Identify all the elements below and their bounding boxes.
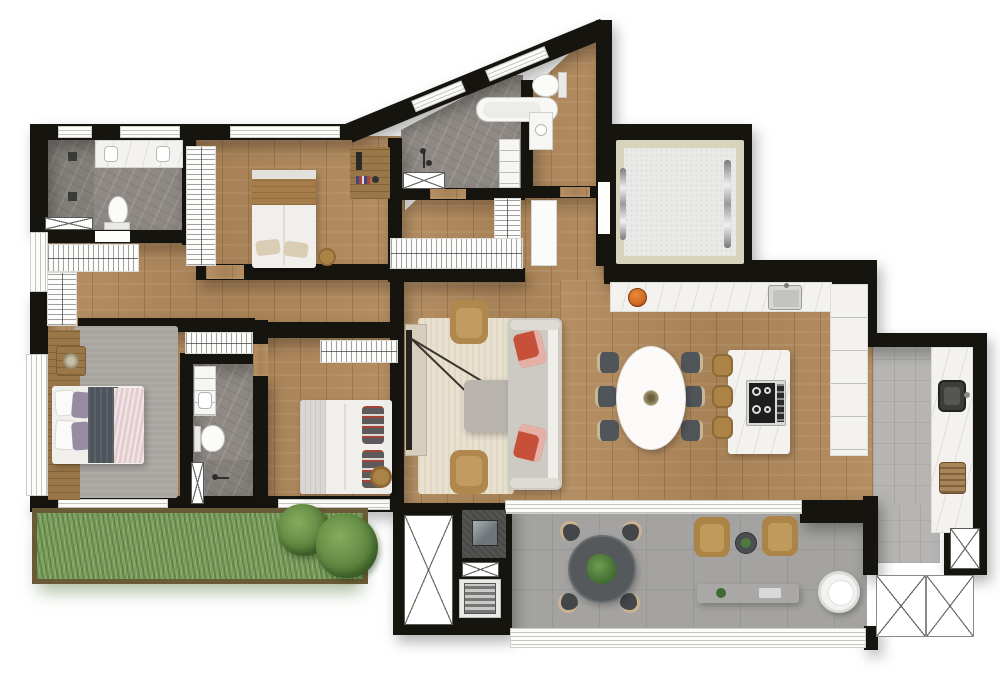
- desk-books: [356, 176, 370, 184]
- door-gap-bedroom1: [206, 265, 244, 279]
- bar-stool-3: [712, 416, 733, 439]
- kitchen-tall-cabinets: [830, 284, 868, 456]
- lounge-chair-1-cushion: [700, 524, 724, 552]
- burner-1: [752, 387, 761, 396]
- elevator-rail-right: [724, 160, 731, 248]
- closet-rack-horizontal: [47, 244, 139, 272]
- wall-bedroom2-top: [253, 322, 402, 338]
- wall-living-left: [390, 268, 404, 512]
- wall-left-upper: [30, 124, 48, 232]
- desk-tv: [356, 152, 362, 170]
- grill-counter-hatch: [462, 562, 499, 577]
- technical-area-cell-1: [876, 575, 926, 637]
- door-gap-bath2: [430, 189, 466, 199]
- balcony-chair-nw: [560, 521, 580, 541]
- balcony-chair-ne: [622, 521, 642, 541]
- door-gap-entry: [598, 182, 610, 234]
- balcony-chair-se: [620, 593, 640, 613]
- door-gap-bath1: [95, 231, 130, 242]
- balcony-table-plant: [587, 554, 617, 584]
- master-shower-door: [191, 462, 204, 504]
- master-shower-arm: [215, 477, 229, 479]
- window-diagonal-1: [411, 80, 465, 112]
- technical-area-cell-2: [926, 575, 974, 637]
- hall-rack-vertical: [494, 198, 521, 242]
- armchair-top: [450, 300, 488, 344]
- egg-chair: [818, 571, 860, 613]
- planter-bench: [697, 584, 799, 603]
- garden-bush-large: [316, 514, 378, 578]
- armchair-bottom-seat: [456, 456, 482, 486]
- desk-bowl: [372, 176, 379, 183]
- window-master-left: [26, 354, 48, 496]
- bedroom1-pouf: [318, 248, 336, 266]
- bedroom2-duvet-seam: [344, 404, 346, 490]
- balcony-side-table: [735, 532, 757, 554]
- master-side-table-vase: [63, 353, 79, 369]
- service-counter: [931, 347, 973, 533]
- master-bath-toilet-tank: [194, 426, 201, 452]
- wall-diagonal: [345, 19, 608, 143]
- grill-grate: [464, 583, 496, 614]
- sofa: [508, 318, 562, 490]
- sofa-pillow-red-1: [512, 329, 547, 369]
- basin-bath1-b: [156, 146, 170, 162]
- bar-stool-1: [712, 354, 733, 377]
- sliding-door-sill-balcony: [505, 500, 802, 514]
- wall-balcony-right: [863, 496, 878, 575]
- closet-rack-vertical: [47, 272, 77, 326]
- dining-chair-l3: [597, 420, 619, 441]
- door-gap-lavabo: [560, 187, 590, 197]
- elevator-rail-left: [620, 168, 626, 240]
- master-bed: [52, 386, 144, 464]
- cabinet-bath2: [499, 139, 520, 188]
- bedroom2-closet-rack: [320, 340, 398, 363]
- door-gap-bedroom2: [253, 344, 268, 376]
- dining-chair-r2: [683, 386, 705, 407]
- service-shaft-small: [950, 528, 980, 569]
- laundry-basket: [939, 462, 966, 494]
- dining-chair-r3: [681, 420, 703, 441]
- fruit-bowl: [628, 288, 647, 307]
- bedroom1-duvet-seam: [283, 205, 285, 265]
- bar-stool-2: [712, 385, 733, 408]
- balcony-chair-sw: [558, 593, 578, 613]
- bedroom1-pillow-a: [255, 239, 281, 257]
- basin-bath1-a: [104, 146, 118, 162]
- cooktop-panel: [749, 383, 775, 423]
- master-bath-basin: [198, 392, 212, 409]
- bench-bath1: [45, 217, 93, 230]
- lounge-chair-1: [694, 517, 730, 557]
- master-shower-floor: [205, 460, 255, 504]
- kitchen-faucet: [784, 283, 789, 288]
- bedroom1-pillow-b: [283, 240, 309, 258]
- burner-4: [764, 406, 771, 413]
- toilet-bath1-tank: [104, 222, 130, 230]
- toilet-lavabo-tank: [558, 72, 567, 98]
- shower-drain-b: [68, 192, 77, 201]
- window-bath1-a: [58, 126, 92, 138]
- hall-rack-horizontal: [390, 238, 523, 269]
- bedroom2-pouf: [370, 466, 392, 488]
- grill-station: [462, 510, 506, 558]
- burner-3: [752, 405, 761, 414]
- dining-chair-r1: [681, 352, 703, 373]
- bedroom1-headboard: [252, 170, 316, 179]
- armchair-top-seat: [456, 308, 482, 338]
- wall-bedroom2-divider-lower: [253, 376, 268, 512]
- bedroom1-wardrobe-rack: [186, 146, 216, 266]
- floor-plan-canvas: [0, 0, 1000, 675]
- window-bedroom1: [230, 126, 340, 138]
- toilet-bath1-bowl: [108, 196, 128, 224]
- shower-drain-a: [68, 152, 77, 161]
- pantry-door-panel: [531, 200, 557, 266]
- grill-station-glass: [472, 520, 498, 546]
- shower-tap-b: [426, 160, 432, 166]
- cooktop-knobs: [777, 384, 784, 422]
- duct-shaft-large: [404, 515, 453, 625]
- dining-chair-l2: [595, 386, 617, 407]
- laundry-sink: [938, 380, 966, 412]
- wall-hall-rack-back: [388, 268, 525, 282]
- bedroom2-foot-blanket: [300, 400, 326, 494]
- lounge-chair-2: [762, 516, 798, 556]
- master-bath-toilet-bowl: [201, 425, 225, 452]
- master-closet-rack: [185, 332, 253, 354]
- balcony-bottom-sill: [510, 628, 866, 648]
- shower-tap-stem: [423, 150, 425, 168]
- bench-bath2: [403, 172, 445, 189]
- toilet-lavabo-bowl: [532, 74, 559, 97]
- bedroom1-blanket: [252, 179, 316, 205]
- coffee-table: [464, 380, 512, 432]
- balcony-side-table-plant: [741, 538, 751, 548]
- sofa-pillow-red-2: [512, 423, 547, 463]
- sofa-armrest-bottom: [510, 478, 560, 488]
- egg-chair-cushion: [828, 580, 854, 606]
- master-blanket-pink: [114, 388, 144, 463]
- dining-chair-l1: [597, 352, 619, 373]
- lounge-chair-2-cushion: [768, 523, 792, 551]
- kitchen-sink-basin: [773, 290, 799, 307]
- window-bath1-b: [120, 126, 180, 138]
- sofa-back-cushions: [548, 324, 558, 484]
- dining-centerpiece: [643, 390, 659, 406]
- basin-lavabo: [535, 124, 547, 136]
- window-closet-left: [30, 232, 48, 292]
- sofa-armrest-top: [510, 320, 560, 330]
- wall-left-mid: [30, 292, 48, 354]
- laundry-sink-basin: [944, 387, 960, 405]
- elevator-cab-floor: [624, 148, 736, 256]
- burner-2: [764, 387, 771, 394]
- armchair-bottom: [450, 450, 488, 494]
- planter-bench-plant: [716, 588, 726, 598]
- laundry-faucet: [964, 392, 970, 398]
- wall-service-top: [861, 333, 987, 347]
- wall-bedroom2-divider-upper: [253, 320, 268, 344]
- bedroom1-bed: [252, 170, 316, 268]
- bedroom2-pillow-striped-1: [362, 406, 384, 444]
- kitchen-sink: [768, 285, 802, 310]
- planter-bench-tray: [758, 587, 782, 599]
- tv-screen: [406, 330, 412, 450]
